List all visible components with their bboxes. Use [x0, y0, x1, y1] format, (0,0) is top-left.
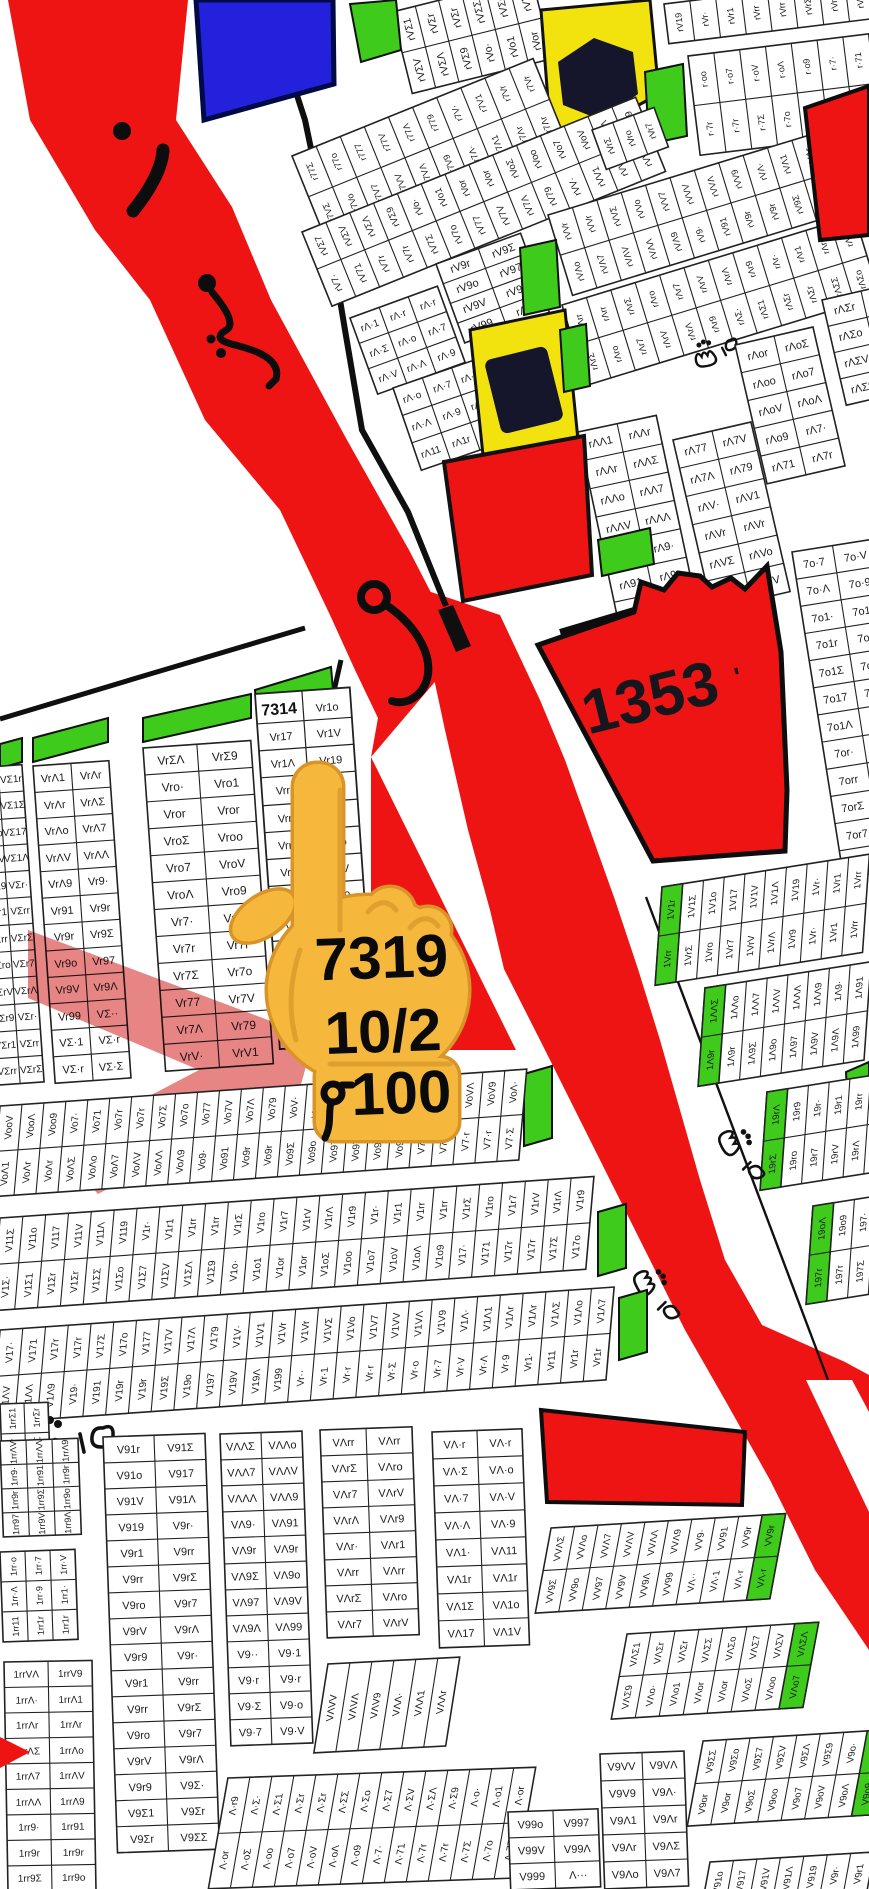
- svg-text:VooV: VooV: [3, 1115, 16, 1140]
- svg-text:VΛ·Σ: VΛ·Σ: [443, 1466, 469, 1479]
- svg-text:V9·o: V9·o: [280, 1699, 304, 1712]
- svg-text:1rr91: 1rr91: [35, 1465, 46, 1486]
- svg-text:V17r: V17r: [526, 1238, 539, 1261]
- svg-text:Vro7: Vro7: [166, 860, 192, 876]
- svg-text:1Vrr: 1Vrr: [852, 870, 864, 890]
- svg-text:VΣr·: VΣr·: [8, 880, 28, 892]
- svg-text:Vo91: Vo91: [219, 1146, 232, 1170]
- svg-text:rVr·: rVr·: [699, 11, 711, 27]
- svg-text:1Λ9V: 1Λ9V: [809, 1030, 821, 1056]
- svg-text:Vr9·: Vr9·: [88, 875, 109, 888]
- svg-text:VΛ·r: VΛ·r: [489, 1437, 512, 1450]
- svg-text:V9r7: V9r7: [174, 1598, 198, 1611]
- svg-text:V9rV: V9rV: [127, 1755, 153, 1768]
- svg-text:197r: 197r: [813, 1267, 825, 1289]
- svg-text:V1r·: V1r·: [141, 1221, 154, 1241]
- svg-text:1V1r: 1V1r: [666, 898, 678, 921]
- svg-text:V99o: V99o: [517, 1819, 543, 1832]
- svg-text:r·o7: r·o7: [724, 68, 736, 85]
- svg-text:19oΛ: 19oΛ: [816, 1216, 828, 1241]
- svg-text:V1Vr: V1Vr: [276, 1321, 289, 1344]
- svg-text:V11V: V11V: [73, 1223, 86, 1248]
- svg-text:VΛ·V: VΛ·V: [489, 1491, 516, 1504]
- svg-text:VoVΛ: VoVΛ: [464, 1082, 477, 1108]
- svg-text:1rr1r: 1rr1r: [35, 1616, 46, 1635]
- svg-text:VΛrΣ: VΛrΣ: [336, 1593, 362, 1606]
- svg-text:VΣ·1: VΣ·1: [59, 1036, 84, 1050]
- svg-text:V9V9: V9V9: [609, 1788, 636, 1801]
- svg-text:7319: 7319: [314, 922, 450, 994]
- svg-text:VΛ·r: VΛ·r: [443, 1439, 466, 1452]
- svg-text:V1oV: V1oV: [388, 1247, 401, 1273]
- svg-text:V1r·: V1r·: [369, 1205, 382, 1225]
- svg-text:V9Λr: V9Λr: [653, 1813, 678, 1826]
- svg-text:Vr9Σ: Vr9Σ: [90, 928, 114, 942]
- svg-text:V1Λr: V1Λr: [527, 1304, 540, 1328]
- svg-text:V1V1: V1V1: [254, 1322, 267, 1348]
- svg-text:Vr·r: Vr·r: [364, 1364, 376, 1382]
- svg-text:V9ΣΣ: V9ΣΣ: [180, 1832, 208, 1845]
- svg-text:1rrΣ1: 1rrΣ1: [7, 1408, 18, 1430]
- svg-text:VΛ9r: VΛ9r: [274, 1543, 299, 1556]
- svg-text:VΛrr: VΛrr: [337, 1567, 360, 1580]
- svg-text:1Λ9Σ: 1Λ9Σ: [747, 1041, 759, 1066]
- svg-text:VoΛo: VoΛo: [87, 1155, 100, 1180]
- svg-text:VrΛo: VrΛo: [44, 825, 69, 839]
- svg-text:V9r1: V9r1: [120, 1548, 144, 1561]
- svg-text:V1ΛΣ: V1ΛΣ: [550, 1301, 563, 1327]
- svg-text:VΛ91: VΛ91: [272, 1517, 299, 1530]
- svg-text:V19V: V19V: [227, 1370, 240, 1396]
- svg-text:V91r: V91r: [117, 1444, 141, 1457]
- svg-text:Vo79: Vo79: [266, 1097, 279, 1121]
- svg-text:1Λ9·: 1Λ9·: [833, 980, 845, 1002]
- svg-text:V1Σr: V1Σr: [46, 1272, 59, 1295]
- svg-text:V9rΛ: V9rΛ: [174, 1624, 200, 1637]
- svg-text:VΛr7: VΛr7: [337, 1619, 362, 1632]
- svg-text:VΣ·r: VΣ·r: [62, 1063, 85, 1076]
- svg-text:V1o·: V1o·: [228, 1260, 241, 1282]
- svg-text:V1ΣΛ: V1ΣΛ: [182, 1261, 195, 1287]
- svg-text:V1V·: V1V·: [231, 1325, 244, 1348]
- svg-text:Vr7r: Vr7r: [173, 941, 196, 957]
- svg-text:VΣrr: VΣrr: [10, 905, 31, 917]
- svg-text:197r: 197r: [834, 1263, 846, 1285]
- svg-text:V1rΣ: V1rΣ: [461, 1197, 474, 1220]
- svg-text:V9··: V9··: [237, 1649, 258, 1662]
- svg-text:Vo9o: Vo9o: [306, 1140, 319, 1164]
- svg-text:1rrΛo: 1rrΛo: [59, 1746, 84, 1757]
- svg-text:V19r: V19r: [137, 1377, 150, 1400]
- svg-text:7314: 7314: [261, 700, 298, 719]
- svg-text:VΛΛo: VΛΛo: [268, 1439, 297, 1452]
- svg-text:V7·r: V7·r: [482, 1129, 495, 1149]
- svg-text:1Vrr: 1Vrr: [849, 919, 861, 939]
- svg-text:1rrΣr: 1rrΣr: [31, 1408, 42, 1428]
- svg-text:1rr91: 1rr91: [61, 1822, 85, 1833]
- svg-text:VΛ9·: VΛ9·: [231, 1519, 256, 1532]
- svg-text:1VrΣ: 1VrΣ: [683, 944, 695, 967]
- svg-text:rVrr: rVrr: [777, 2, 789, 18]
- svg-text:1Λ9o: 1Λ9o: [767, 1038, 779, 1062]
- svg-text:VΛΛΛ: VΛΛΛ: [227, 1493, 257, 1506]
- svg-text:19r9: 19r9: [791, 1101, 803, 1122]
- svg-text:VΣ·Σ: VΣ·Σ: [99, 1060, 125, 1074]
- svg-text:1rr9V: 1rr9V: [37, 1512, 48, 1534]
- svg-text:1rrΛΛ: 1rrΛΛ: [16, 1797, 42, 1808]
- svg-text:V91V: V91V: [117, 1496, 145, 1509]
- svg-text:1rr9Σ: 1rr9Σ: [18, 1873, 42, 1884]
- svg-text:Λ···: Λ···: [569, 1869, 588, 1882]
- svg-text:VΛ11: VΛ11: [491, 1545, 518, 1558]
- svg-text:V197: V197: [204, 1372, 217, 1397]
- svg-text:V19Λ: V19Λ: [250, 1368, 263, 1394]
- svg-text:1rr1·: 1rr1·: [59, 1585, 70, 1604]
- svg-text:V1r1: V1r1: [164, 1218, 177, 1240]
- svg-text:1rr1r: 1rr1r: [60, 1615, 71, 1634]
- svg-text:V9r9: V9r9: [124, 1652, 148, 1665]
- svg-text:VΛrr: VΛrr: [332, 1437, 355, 1450]
- svg-text:VΣr·: VΣr·: [17, 1011, 37, 1023]
- svg-text:V9·1: V9·1: [278, 1647, 302, 1660]
- svg-text:1ΛΛV: 1ΛΛV: [771, 987, 784, 1014]
- svg-text:VΣrΣ: VΣrΣ: [20, 1064, 43, 1077]
- svg-text:VΛ97: VΛ97: [232, 1597, 259, 1610]
- svg-text:r·7r: r·7r: [704, 121, 716, 136]
- svg-text:19rr: 19rr: [854, 1091, 866, 1111]
- svg-text:1rrΛ·: 1rrΛ·: [15, 1695, 37, 1706]
- svg-text:V191: V191: [91, 1380, 104, 1405]
- svg-text:VΛr7: VΛr7: [333, 1489, 358, 1502]
- svg-text:1rr11: 1rr11: [10, 1616, 21, 1637]
- svg-text:rVrΣ: rVrΣ: [802, 0, 814, 16]
- svg-text:V1V9: V1V9: [436, 1309, 449, 1335]
- svg-text:VΛ9V: VΛ9V: [274, 1595, 303, 1608]
- svg-text:1ΛΛ9: 1ΛΛ9: [812, 982, 824, 1007]
- svg-text:V19o: V19o: [181, 1373, 194, 1398]
- svg-text:1rrΛΛ: 1rrΛΛ: [34, 1440, 45, 1463]
- svg-text:1ΛΛΛ: 1ΛΛΛ: [791, 984, 804, 1011]
- svg-text:V1rr: V1rr: [415, 1201, 428, 1221]
- svg-text:VΛΛΣ: VΛΛΣ: [226, 1441, 255, 1454]
- svg-text:V1oΣ: V1oΣ: [319, 1252, 332, 1277]
- svg-text:Vro·: Vro·: [161, 779, 184, 795]
- svg-text:V1ro: V1ro: [255, 1211, 268, 1233]
- svg-text:1Λ9r: 1Λ9r: [705, 1048, 717, 1071]
- svg-text:VrΛΛ: VrΛΛ: [83, 849, 110, 863]
- svg-text:Vo7r: Vo7r: [113, 1108, 126, 1130]
- svg-text:V19Σ: V19Σ: [159, 1375, 172, 1400]
- svg-text:V9r1: V9r1: [125, 1678, 149, 1691]
- svg-text:Vr7·: Vr7·: [171, 914, 194, 930]
- svg-text:V999: V999: [519, 1871, 545, 1884]
- svg-text:V1r7: V1r7: [507, 1194, 520, 1216]
- svg-text:7o1r: 7o1r: [857, 630, 869, 645]
- svg-text:1V1Λ: 1V1Λ: [769, 880, 781, 906]
- svg-text:V1o7: V1o7: [365, 1249, 378, 1274]
- svg-text:V9rΛ: V9rΛ: [179, 1754, 205, 1767]
- svg-text:V9Σr: V9Σr: [130, 1833, 155, 1846]
- svg-text:V9rr: V9rr: [173, 1546, 195, 1559]
- svg-text:VrΛ9: VrΛ9: [48, 878, 73, 892]
- svg-text:V1Σo: V1Σo: [114, 1266, 127, 1291]
- svg-text:V9ΛΣ: V9ΛΣ: [652, 1840, 680, 1853]
- svg-text:V1oΛ: V1oΛ: [411, 1245, 424, 1271]
- svg-text:VΛ·o: VΛ·o: [489, 1464, 514, 1477]
- svg-text:Vr7o: Vr7o: [227, 964, 253, 980]
- svg-text:1ΛΛ7: 1ΛΛ7: [750, 991, 762, 1016]
- svg-text:1rr97: 1rr97: [11, 1514, 22, 1535]
- svg-text:V1Λo: V1Λo: [573, 1299, 586, 1325]
- svg-text:V1ΣΣ: V1ΣΣ: [91, 1268, 104, 1294]
- svg-text:V9Λ7: V9Λ7: [654, 1867, 681, 1880]
- svg-text:V1Σ1: V1Σ1: [23, 1272, 36, 1297]
- svg-text:Vo7r: Vo7r: [135, 1107, 148, 1129]
- svg-text:1V1Σ: 1V1Σ: [686, 894, 698, 919]
- svg-text:V1r7: V1r7: [278, 1210, 291, 1232]
- svg-text:V1rV: V1rV: [301, 1208, 314, 1231]
- svg-text:V17r: V17r: [72, 1336, 85, 1359]
- svg-text:V17Λ: V17Λ: [186, 1327, 199, 1353]
- svg-text:1rr9o: 1rr9o: [62, 1873, 86, 1884]
- svg-text:VΛ17: VΛ17: [447, 1628, 474, 1641]
- svg-text:VΣ19: VΣ19: [0, 881, 7, 894]
- svg-text:V9·Σ: V9·Σ: [237, 1701, 262, 1714]
- svg-text:1rrVΛ: 1rrVΛ: [13, 1669, 39, 1680]
- svg-text:VΛrΛ: VΛrΛ: [333, 1515, 360, 1528]
- svg-text:VΛrr: VΛrr: [378, 1435, 401, 1448]
- svg-text:VΣrr: VΣrr: [0, 934, 9, 946]
- svg-text:V1VΣ: V1VΣ: [322, 1317, 335, 1343]
- svg-text:V1or: V1or: [297, 1254, 310, 1277]
- svg-text:V19·: V19·: [68, 1383, 81, 1405]
- svg-text:1rr9Σ: 1rr9Σ: [36, 1488, 47, 1510]
- svg-text:VΛr9: VΛr9: [380, 1513, 405, 1526]
- svg-text:V1rΛ: V1rΛ: [323, 1206, 336, 1229]
- svg-text:rVr1: rVr1: [725, 7, 737, 25]
- svg-text:VΛΛ9: VΛΛ9: [270, 1491, 299, 1504]
- svg-text:Vro9: Vro9: [221, 883, 247, 899]
- svg-text:V179: V179: [209, 1325, 222, 1350]
- svg-text:V9·7: V9·7: [239, 1727, 263, 1740]
- svg-text:VΣrV: VΣrV: [0, 987, 14, 1000]
- svg-text:VoΛr: VoΛr: [43, 1159, 56, 1182]
- svg-text:Vo7Λ: Vo7Λ: [244, 1098, 257, 1123]
- svg-text:1rrΛ9: 1rrΛ9: [60, 1440, 71, 1462]
- svg-text:VrΛ7: VrΛ7: [82, 822, 107, 836]
- svg-text:V7·Σ: V7·Σ: [504, 1127, 517, 1150]
- svg-text:V9ro: V9ro: [122, 1600, 146, 1613]
- svg-text:1rrΛ9: 1rrΛ9: [60, 1797, 85, 1808]
- svg-text:V9VV: V9VV: [607, 1761, 636, 1774]
- svg-text:V19r: V19r: [114, 1379, 127, 1402]
- svg-text:19rΛ: 19rΛ: [850, 1139, 862, 1162]
- svg-text:Vr17: Vr17: [269, 731, 293, 745]
- svg-text:V17Σ: V17Σ: [95, 1334, 108, 1359]
- svg-text:19r7: 19r7: [809, 1147, 821, 1168]
- svg-text:VΛ9Λ: VΛ9Λ: [233, 1623, 262, 1636]
- svg-text:VΛro: VΛro: [378, 1461, 403, 1474]
- svg-text:V11Σ: V11Σ: [4, 1228, 17, 1252]
- svg-text:VrΛV: VrΛV: [45, 852, 72, 866]
- svg-text:V7·r: V7·r: [460, 1131, 473, 1151]
- svg-text:Vr·r: Vr·r: [341, 1366, 353, 1384]
- svg-text:19rΣ: 19rΣ: [767, 1153, 779, 1175]
- svg-text:Vr·V: Vr·V: [455, 1356, 468, 1377]
- svg-text:VΛ·7: VΛ·7: [444, 1493, 469, 1506]
- svg-text:Vo9r: Vo9r: [241, 1146, 254, 1168]
- svg-text:1rrΛr: 1rrΛr: [60, 1720, 83, 1731]
- svg-text:r·7·: r·7·: [827, 56, 839, 71]
- svg-text:VΛr·: VΛr·: [336, 1541, 358, 1554]
- svg-text:1V1V: 1V1V: [748, 883, 760, 909]
- svg-text:VΛ9o: VΛ9o: [273, 1569, 300, 1582]
- svg-text:V9r7: V9r7: [179, 1728, 203, 1741]
- svg-text:V9r·: V9r·: [177, 1650, 198, 1663]
- svg-text:1rr·o: 1rr·o: [8, 1557, 19, 1576]
- svg-text:1Λ9r: 1Λ9r: [726, 1045, 738, 1068]
- svg-text:1Λ99: 1Λ99: [850, 1025, 862, 1049]
- svg-text:1Vr9: 1Vr9: [787, 928, 799, 950]
- svg-text:197Σ: 197Σ: [855, 1259, 867, 1283]
- svg-text:V1r9: V1r9: [346, 1205, 359, 1227]
- svg-text:VΛΛV: VΛΛV: [268, 1465, 298, 1478]
- svg-text:V9·r: V9·r: [280, 1673, 302, 1686]
- svg-text:1VrΛ: 1VrΛ: [766, 930, 778, 954]
- svg-text:1rrV9: 1rrV9: [58, 1669, 83, 1680]
- svg-text:V199: V199: [272, 1367, 285, 1392]
- svg-text:V1rΛ: V1rΛ: [552, 1190, 565, 1213]
- svg-text:rVr7: rVr7: [854, 0, 866, 9]
- svg-text:V11o: V11o: [27, 1227, 40, 1251]
- svg-text:1rr·Λ: 1rr·Λ: [9, 1586, 20, 1606]
- svg-text:V997: V997: [563, 1817, 589, 1830]
- svg-text:Vo71: Vo71: [91, 1109, 104, 1133]
- svg-text:r·o9: r·o9: [801, 58, 813, 75]
- svg-text:VΛrV: VΛrV: [378, 1487, 405, 1500]
- svg-text:VrΣ9: VrΣ9: [211, 748, 238, 764]
- svg-text:V9r9: V9r9: [128, 1782, 152, 1795]
- svg-text:VrΛr: VrΛr: [80, 769, 103, 783]
- svg-text:1rrΛV: 1rrΛV: [8, 1441, 19, 1464]
- svg-text:VΛ99: VΛ99: [275, 1621, 302, 1634]
- svg-text:VoΛ9: VoΛ9: [175, 1149, 188, 1174]
- svg-text:V1Σr: V1Σr: [69, 1270, 82, 1293]
- svg-text:V1Λr: V1Λr: [504, 1305, 517, 1329]
- svg-text:V17V: V17V: [163, 1328, 176, 1354]
- svg-text:VoV9: VoV9: [486, 1081, 499, 1106]
- svg-text:VrΛr: VrΛr: [44, 799, 67, 813]
- svg-text:V9Λo: V9Λo: [612, 1869, 639, 1882]
- svg-text:19o9: 19o9: [837, 1214, 849, 1237]
- svg-text:1Λ91: 1Λ91: [854, 976, 866, 1000]
- svg-text:1rr9r: 1rr9r: [61, 1465, 72, 1484]
- svg-text:V9Σ1: V9Σ1: [128, 1807, 155, 1820]
- svg-text:r·oΛ: r·oΛ: [775, 61, 787, 79]
- svg-text:Vr1·: Vr1·: [523, 1352, 536, 1371]
- svg-text:Vroo: Vroo: [218, 829, 244, 845]
- svg-text:VΛ·Λ: VΛ·Λ: [444, 1520, 471, 1533]
- svg-text:V1Σ9: V1Σ9: [205, 1259, 218, 1284]
- svg-text:V9Λ1: V9Λ1: [610, 1815, 637, 1828]
- svg-text:Vror: Vror: [217, 802, 240, 818]
- svg-text:V9VΛ: V9VΛ: [649, 1759, 678, 1772]
- svg-text:1Vr·: 1Vr·: [811, 877, 823, 897]
- svg-text:V1Λ7: V1Λ7: [596, 1298, 609, 1324]
- svg-text:V9·V: V9·V: [280, 1725, 306, 1738]
- svg-text:VΛΛ7: VΛΛ7: [227, 1467, 256, 1480]
- svg-text:Vo7Σ: Vo7Σ: [157, 1104, 170, 1128]
- svg-text:V1o9: V1o9: [434, 1244, 447, 1269]
- svg-text:197·: 197·: [858, 1212, 869, 1233]
- svg-text:VΣrr: VΣrr: [0, 1066, 18, 1078]
- svg-text:V1oo: V1oo: [342, 1250, 355, 1275]
- svg-text:VΛr1: VΛr1: [381, 1539, 406, 1552]
- svg-text:V99V: V99V: [518, 1845, 546, 1858]
- svg-text:V1o1: V1o1: [251, 1257, 264, 1282]
- svg-text:Vr1V: Vr1V: [317, 727, 342, 741]
- svg-text:V9rV: V9rV: [122, 1626, 148, 1639]
- svg-text:Vr·Σ: Vr·Σ: [386, 1362, 399, 1382]
- svg-text:1Vr7: 1Vr7: [724, 938, 736, 960]
- svg-text:VΛrV: VΛrV: [383, 1617, 410, 1630]
- svg-text:V9rΣ: V9rΣ: [173, 1572, 198, 1585]
- svg-text:VΛ·9: VΛ·9: [491, 1518, 516, 1531]
- svg-text:V1rr: V1rr: [187, 1217, 200, 1237]
- svg-text:Vo77: Vo77: [201, 1101, 214, 1125]
- svg-text:VΛro: VΛro: [382, 1591, 407, 1604]
- svg-text:V1rV: V1rV: [530, 1192, 543, 1215]
- svg-text:1Λ9Λ: 1Λ9Λ: [829, 1027, 841, 1053]
- svg-text:VΛrΣ: VΛrΣ: [332, 1463, 358, 1476]
- svg-text:Vr1o: Vr1o: [315, 701, 339, 715]
- svg-text:V117: V117: [50, 1225, 63, 1249]
- svg-text:100: 100: [350, 1058, 452, 1128]
- svg-text:V917: V917: [168, 1468, 194, 1481]
- svg-text:1rr9r: 1rr9r: [63, 1848, 85, 1859]
- svg-text:VroV: VroV: [219, 856, 246, 872]
- svg-text:V177: V177: [141, 1330, 154, 1355]
- svg-text:Vr··: Vr··: [296, 1369, 308, 1386]
- svg-text:1rr·V: 1rr·V: [58, 1555, 69, 1575]
- svg-text:V17r: V17r: [503, 1240, 516, 1263]
- svg-text:V11Λ: V11Λ: [95, 1221, 108, 1246]
- svg-text:VroΣ: VroΣ: [163, 833, 190, 849]
- svg-text:1V19: 1V19: [790, 878, 802, 902]
- svg-text:Vo9·: Vo9·: [197, 1149, 210, 1170]
- svg-text:VΣrr: VΣrr: [19, 1038, 40, 1050]
- svg-text:1rr·7: 1rr·7: [33, 1556, 44, 1575]
- svg-text:VΣ17: VΣ17: [2, 826, 27, 839]
- svg-text:V119: V119: [118, 1220, 131, 1244]
- svg-text:Vr·Λ: Vr·Λ: [478, 1355, 491, 1376]
- svg-text:1rrΛ7: 1rrΛ7: [16, 1771, 41, 1782]
- svg-text:Vr1r: Vr1r: [569, 1349, 582, 1369]
- svg-text:V1Σ·: V1Σ·: [0, 1275, 13, 1298]
- svg-text:Vr9r: Vr9r: [90, 902, 111, 915]
- svg-text:Vr11: Vr11: [546, 1350, 559, 1371]
- svg-text:VoV·: VoV·: [288, 1096, 301, 1119]
- svg-text:V9Λ·: V9Λ·: [652, 1786, 677, 1799]
- svg-text:r·oo: r·oo: [698, 71, 710, 88]
- svg-text:VrΛ1: VrΛ1: [41, 772, 66, 786]
- svg-text:VΛ1o: VΛ1o: [492, 1599, 519, 1612]
- svg-text:V9rr: V9rr: [178, 1676, 200, 1689]
- svg-text:VoΛr: VoΛr: [21, 1160, 34, 1183]
- svg-text:1ΛΛΣ: 1ΛΛΣ: [708, 998, 720, 1024]
- svg-text:1ΛΛo: 1ΛΛo: [729, 995, 741, 1020]
- svg-text:1rr9·: 1rr9·: [9, 1467, 20, 1486]
